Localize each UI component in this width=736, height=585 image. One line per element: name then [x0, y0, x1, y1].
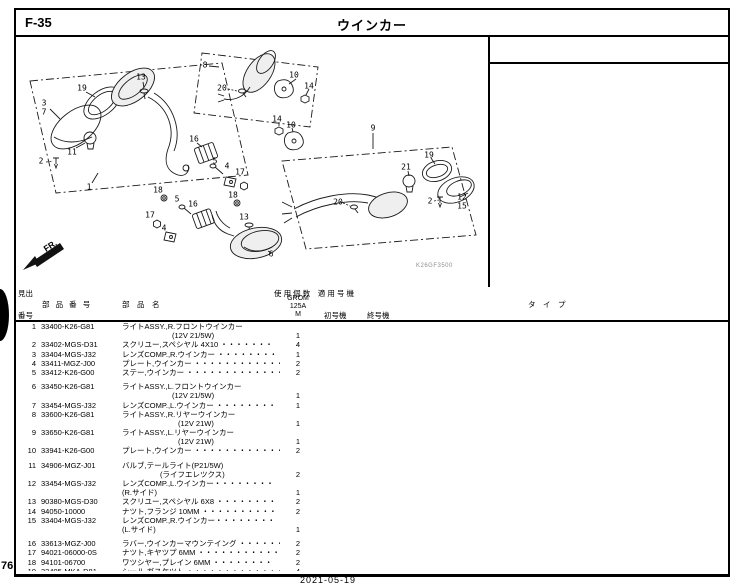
part-number: 90380-MGS-D30: [41, 497, 121, 506]
model-line2: 125A: [290, 303, 306, 310]
part-number: 33450-K26-G81: [41, 382, 121, 391]
part-name: レンズCOMP.,L.ウインカー ・・・・・・・・: [122, 401, 280, 410]
callout-number: 10: [286, 121, 296, 130]
part-number: 33405-MKA-D81: [41, 567, 121, 571]
part-number: 33404-MGS-J32: [41, 516, 121, 525]
callout-number: 17: [235, 168, 245, 177]
part-row-number: 6: [18, 382, 36, 391]
part-number: 33402-MGS-D31: [41, 340, 121, 349]
part-name: ナツト,キヤツプ 6MM ・・・・・・・・・・・: [122, 548, 280, 557]
front-direction-arrow: FR.: [23, 238, 64, 270]
diagram-code: K26GF3500: [416, 263, 453, 269]
part-name: プレート,ウインカー ・・・・・・・・・・・・・: [122, 359, 280, 368]
part-name: シール,ガスケツト ・・・・・・・・・・・・・・: [122, 567, 280, 571]
callout-number: 15: [457, 202, 467, 211]
part-row-line: 233402-MGS-D31スクリユー,スペシヤル 4X10 ・・・・・・・4: [16, 340, 728, 349]
part-quantity: 1: [278, 401, 318, 410]
col-part-name: 部 品 名: [122, 299, 160, 310]
parts-table-rows: 133400-K26-G81ライトASSY.,R.フロントウインカー(12V 2…: [16, 322, 728, 571]
part-row-line: 1494050-10000ナツト,フランジ 10MM ・・・・・・・・・・2: [16, 507, 728, 516]
part-number: 33941-K26-G00: [41, 446, 121, 455]
callout-number: 13: [136, 73, 146, 82]
part-row-number: 15: [18, 516, 36, 525]
part-row-line: (L.サイド)1: [16, 525, 728, 534]
part-row-number: 5: [18, 368, 36, 377]
callout-number: 1: [87, 183, 92, 192]
callout-number: 12: [457, 193, 467, 202]
part-quantity: 2: [278, 548, 318, 557]
part-row-line: (ライフエレツクス)2: [16, 470, 728, 479]
part-number: 33412-K26-G00: [41, 368, 121, 377]
part-row-line: 733454-MGS-J32レンズCOMP.,L.ウインカー ・・・・・・・・1: [16, 401, 728, 410]
callout-number: 16: [189, 135, 199, 144]
part-row-number: 1: [18, 322, 36, 331]
part-row-number: 3: [18, 350, 36, 359]
part-row-number: 8: [18, 410, 36, 419]
part-row-number: 4: [18, 359, 36, 368]
part-quantity: 2: [278, 497, 318, 506]
callout-number: 16: [188, 200, 198, 209]
part-name: ライトASSY.,L.フロントウインカー: [122, 382, 280, 391]
page-title: ウインカー: [16, 15, 728, 34]
part-name: ライトASSY.,R.リヤーウインカー: [122, 410, 280, 419]
part-quantity: 1: [278, 331, 318, 340]
part-name: (R.サイド): [122, 488, 280, 497]
thumb-index-tab: [0, 289, 9, 341]
col-type: タ イ プ: [528, 299, 566, 310]
part-name: ライトASSY.,R.フロントウインカー: [122, 322, 280, 331]
part-row-line: (12V 21W)1: [16, 419, 728, 428]
col-first-machine: 初号機: [324, 310, 347, 321]
part-row-line: 1033941-K26-G00プレート,ウインカー ・・・・・・・・・・・・・2: [16, 446, 728, 455]
callout-number: 4: [162, 224, 167, 233]
callout-number: 8: [203, 61, 208, 70]
part-quantity: 2: [278, 368, 318, 377]
part-row-number: 13: [18, 497, 36, 506]
part-name: スクリユー,スペシヤル 4X10 ・・・・・・・: [122, 340, 280, 349]
part-number: 94101-06700: [41, 558, 121, 567]
callout-number: 21: [401, 163, 411, 172]
parts-table-header: 見出 番号 部 品 番 号 部 品 名 使 用 個 数 適 用 号 機 GROM…: [16, 287, 728, 322]
part-quantity: 1: [278, 391, 318, 400]
part-row-line: 1134906-MGZ-J01バルブ,テールライト(P21/5W): [16, 461, 728, 470]
callout-number: 5: [175, 195, 180, 204]
part-number: 94050-10000: [41, 507, 121, 516]
part-row-number: 18: [18, 558, 36, 567]
part-number: 33411-MGZ-J00: [41, 359, 121, 368]
part-name: ナツト,フランジ 10MM ・・・・・・・・・・: [122, 507, 280, 516]
col-heading-number-bottom: 番号: [18, 310, 33, 321]
part-quantity: 2: [278, 359, 318, 368]
part-row-number: 11: [18, 461, 36, 470]
part-quantity: 2: [278, 507, 318, 516]
part-number: 94021-06000-0S: [41, 548, 121, 557]
callout-number: 2: [428, 197, 433, 206]
model-line3: M: [295, 311, 301, 318]
part-row-line: 833600-K26-G81ライトASSY.,R.リヤーウインカー: [16, 410, 728, 419]
callout-number: 17: [145, 211, 155, 220]
part-row-line: (12V 21/5W)1: [16, 391, 728, 400]
page-number: 76: [1, 560, 13, 572]
callout-number: 10: [289, 71, 299, 80]
callout-number: 14: [304, 82, 314, 91]
part-name: ステー,ウインカー ・・・・・・・・・・・・・・: [122, 368, 280, 377]
part-row-line: 533412-K26-G00ステー,ウインカー ・・・・・・・・・・・・・・2: [16, 368, 728, 377]
model-line1: GROM: [287, 295, 309, 302]
part-quantity: 1: [278, 525, 318, 534]
part-name: レンズCOMP.,L.ウインカー・・・・・・・・: [122, 479, 280, 488]
part-name: スクリユー,スペシヤル 6X8 ・・・・・・・・: [122, 497, 280, 506]
diagram-line-art: FR.: [16, 37, 487, 287]
col-model: GROM 125A M: [278, 295, 318, 319]
callout-number: 20: [333, 198, 343, 207]
part-name: レンズCOMP.,R.ウインカー ・・・・・・・・: [122, 350, 280, 359]
callout-number: 2: [39, 157, 44, 166]
col-part-number: 部 品 番 号: [42, 299, 92, 310]
part-quantity: 2: [278, 539, 318, 548]
col-last-machine: 終号機: [367, 310, 390, 321]
part-quantity: 2: [278, 558, 318, 567]
callout-number: 6: [269, 250, 274, 259]
part-number: 33404-MGS-J32: [41, 350, 121, 359]
part-row-line: 1233454-MGS-J32レンズCOMP.,L.ウインカー・・・・・・・・: [16, 479, 728, 488]
part-number: 33650-K26-G81: [41, 428, 121, 437]
part-row-number: 14: [18, 507, 36, 516]
callout-number: 5: [213, 157, 218, 166]
part-number: 33454-MGS-J32: [41, 479, 121, 488]
callout-number: 9: [371, 124, 376, 133]
callout-number: 13: [239, 213, 249, 222]
part-row-number: 17: [18, 548, 36, 557]
part-row-number: 10: [18, 446, 36, 455]
part-row-line: 1390380-MGS-D30スクリユー,スペシヤル 6X8 ・・・・・・・・2: [16, 497, 728, 506]
title-bar: F-35 ウインカー: [16, 10, 728, 37]
part-quantity: 1: [278, 437, 318, 446]
part-quantity: 4: [278, 567, 318, 571]
part-quantity: 2: [278, 470, 318, 479]
exploded-parts-diagram: FR. 813192010143714109211192116541718118…: [16, 37, 487, 287]
part-row-line: 633450-K26-G81ライトASSY.,L.フロントウインカー: [16, 382, 728, 391]
part-name: (L.サイド): [122, 525, 280, 534]
col-heading-number-top: 見出: [18, 288, 33, 299]
callout-number: 18: [153, 186, 163, 195]
part-number: 34906-MGZ-J01: [41, 461, 121, 470]
part-name: ラバー,ウインカーマウンテイング ・・・・・・: [122, 539, 280, 548]
part-name: レンズCOMP.,R.ウインカー・・・・・・・・: [122, 516, 280, 525]
part-number: 33613-MGZ-J00: [41, 539, 121, 548]
part-row-number: 2: [18, 340, 36, 349]
callout-number: 19: [424, 151, 434, 160]
part-number: 33454-MGS-J32: [41, 401, 121, 410]
part-row-line: 1633613-MGZ-J00ラバー,ウインカーマウンテイング ・・・・・・2: [16, 539, 728, 548]
callout-number: 14: [272, 115, 282, 124]
callout-number: 11: [67, 148, 77, 157]
part-row-line: (12V 21W)1: [16, 437, 728, 446]
callout-number: 3: [42, 99, 47, 108]
part-quantity: 1: [278, 350, 318, 359]
callout-number: 7: [42, 108, 47, 117]
part-number: 33400-K26-G81: [41, 322, 121, 331]
part-row-line: (R.サイド)1: [16, 488, 728, 497]
part-name: ライトASSY.,L.リヤーウインカー: [122, 428, 280, 437]
part-quantity: 2: [278, 446, 318, 455]
part-name: プレート,ウインカー ・・・・・・・・・・・・・: [122, 446, 280, 455]
part-row-number: 12: [18, 479, 36, 488]
notes-panel: [488, 37, 728, 287]
callout-number: 4: [225, 162, 230, 171]
part-row-number: 7: [18, 401, 36, 410]
part-quantity: 1: [278, 488, 318, 497]
part-row-line: (12V 21/5W)1: [16, 331, 728, 340]
parts-catalog-page: 76 2021-05-19 F-35 ウインカー: [0, 0, 736, 580]
part-row-number: 19: [18, 567, 36, 571]
part-row-line: 133400-K26-G81ライトASSY.,R.フロントウインカー: [16, 322, 728, 331]
part-number: 33600-K26-G81: [41, 410, 121, 419]
part-row-line: 1794021-06000-0Sナツト,キヤツプ 6MM ・・・・・・・・・・・…: [16, 548, 728, 557]
part-row-line: 1894101-06700ワツシヤー,プレイン 6MM ・・・・・・・・2: [16, 558, 728, 567]
part-row-line: 433411-MGZ-J00プレート,ウインカー ・・・・・・・・・・・・・2: [16, 359, 728, 368]
notes-panel-header-cell: [490, 37, 728, 64]
part-row-number: 16: [18, 539, 36, 548]
callout-number: 18: [228, 191, 238, 200]
part-row-line: 933650-K26-G81ライトASSY.,L.リヤーウインカー: [16, 428, 728, 437]
part-row-number: 9: [18, 428, 36, 437]
part-row-line: 1933405-MKA-D81シール,ガスケツト ・・・・・・・・・・・・・・4: [16, 567, 728, 571]
callout-number: 19: [77, 84, 87, 93]
part-name: ワツシヤー,プレイン 6MM ・・・・・・・・: [122, 558, 280, 567]
part-name: バルブ,テールライト(P21/5W): [122, 461, 280, 470]
part-row-line: 333404-MGS-J32レンズCOMP.,R.ウインカー ・・・・・・・・1: [16, 350, 728, 359]
page-border: F-35 ウインカー: [14, 8, 730, 577]
callout-number: 20: [217, 84, 227, 93]
part-quantity: 4: [278, 340, 318, 349]
part-quantity: 1: [278, 419, 318, 428]
part-row-line: 1533404-MGS-J32レンズCOMP.,R.ウインカー・・・・・・・・: [16, 516, 728, 525]
